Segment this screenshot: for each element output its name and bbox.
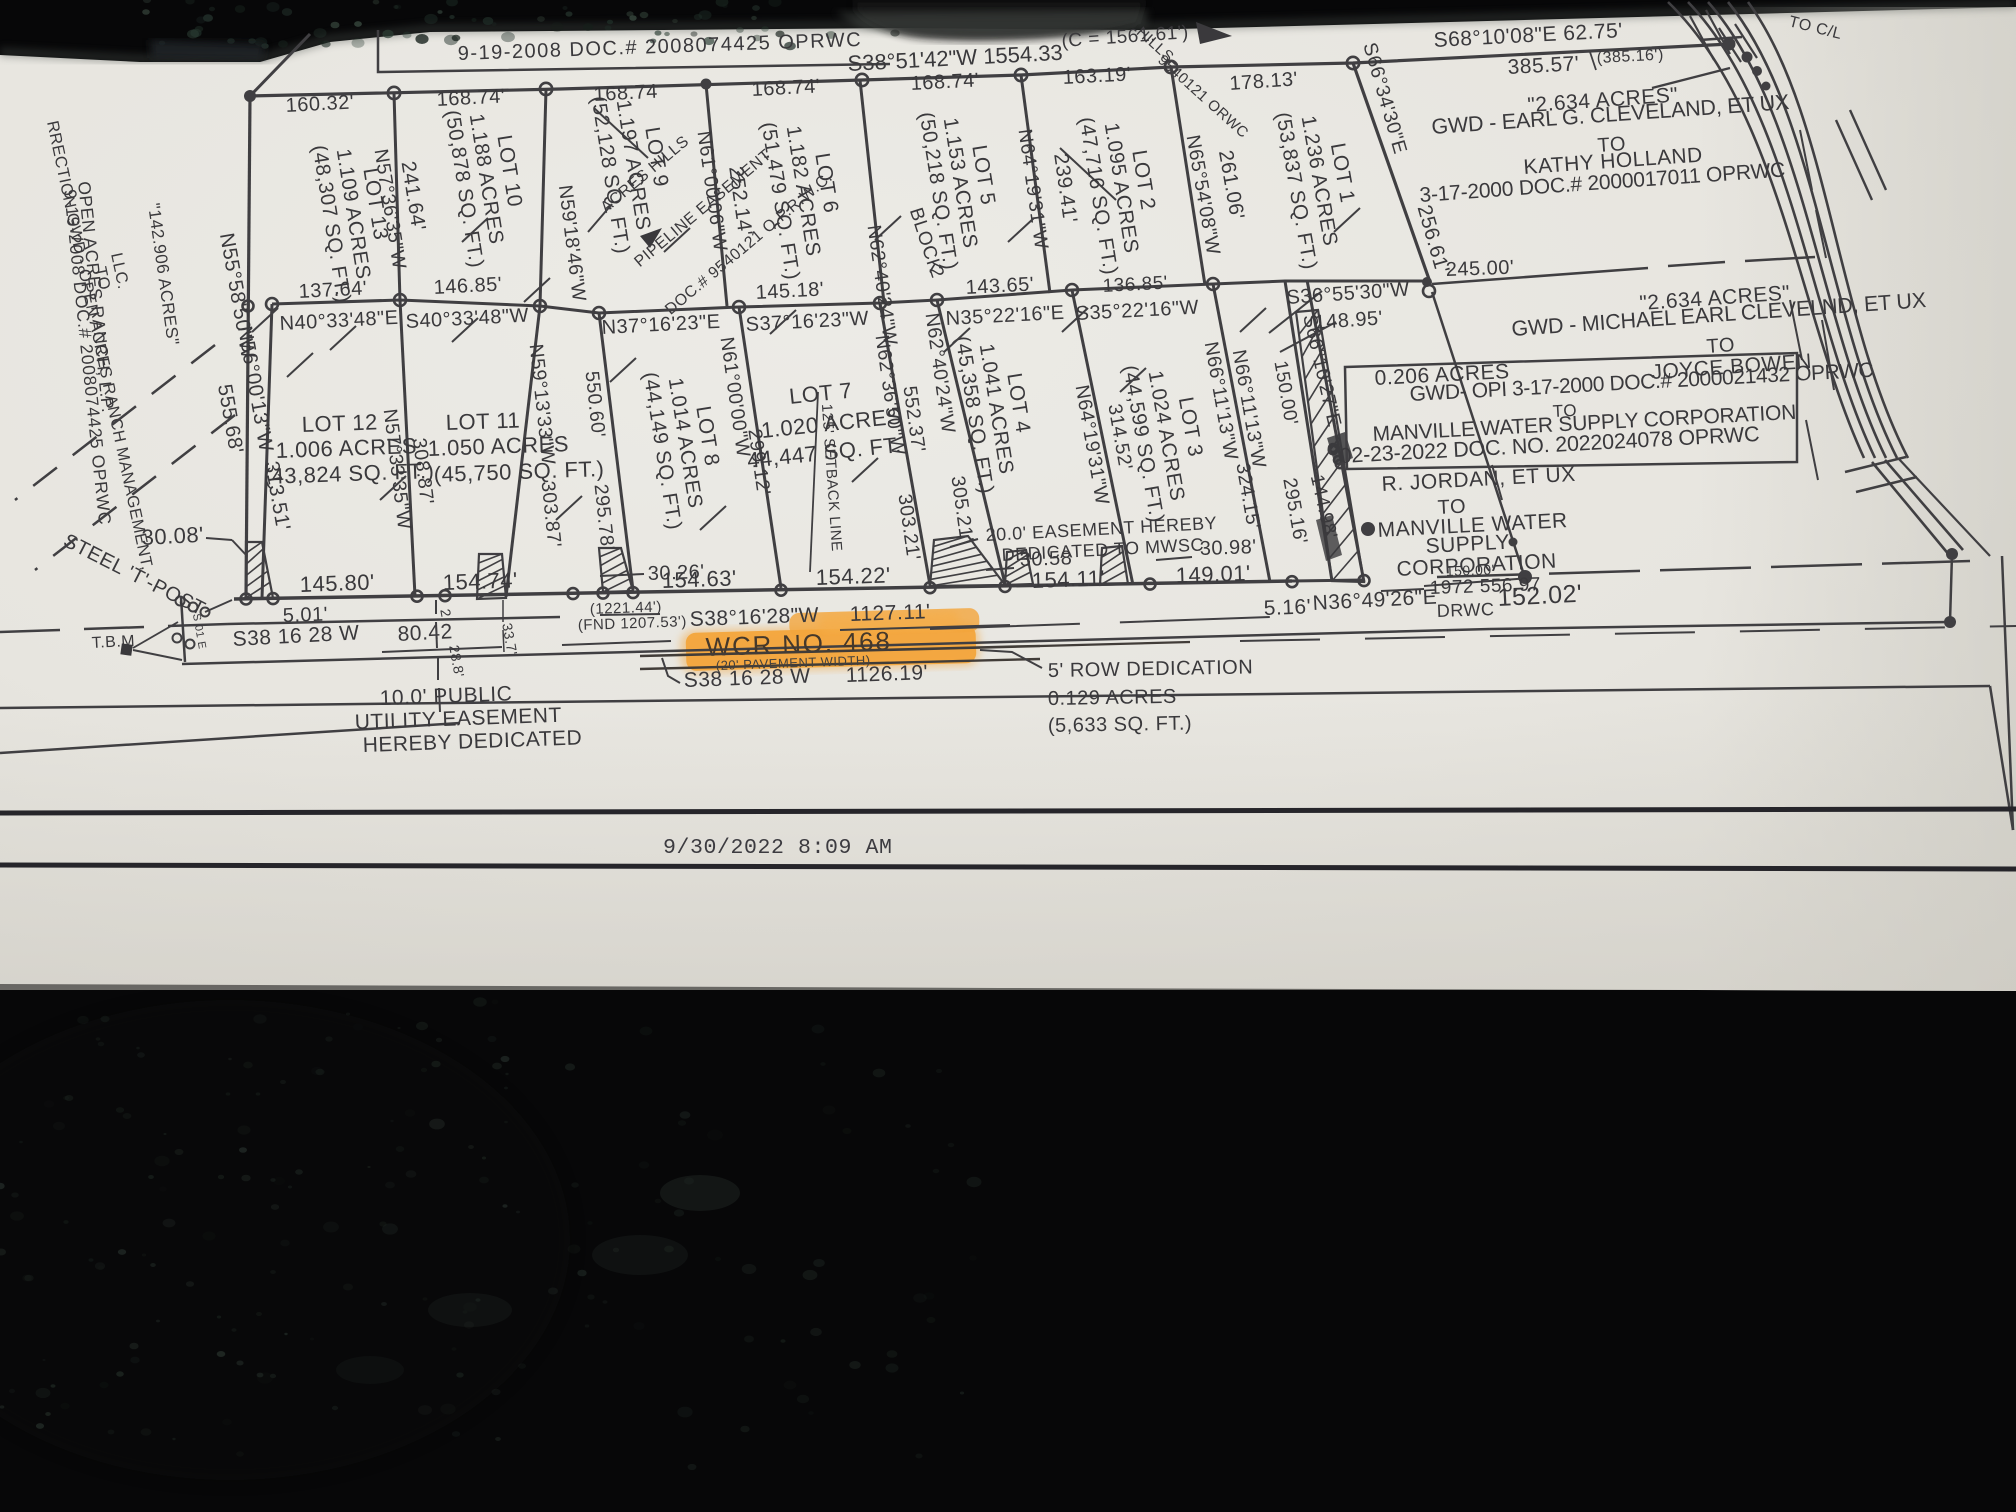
svg-text:145.80': 145.80' bbox=[299, 569, 375, 597]
svg-text:1126.19': 1126.19' bbox=[845, 661, 928, 687]
svg-text:146.85': 146.85' bbox=[433, 273, 503, 299]
svg-text:168.74': 168.74' bbox=[436, 85, 506, 111]
svg-text:S38 16 28 W: S38 16 28 W bbox=[683, 665, 811, 692]
svg-text:245.00': 245.00' bbox=[1445, 257, 1514, 281]
svg-text:154.74': 154.74' bbox=[442, 567, 518, 595]
svg-text:154.22': 154.22' bbox=[815, 562, 891, 590]
svg-text:143.65': 143.65' bbox=[965, 273, 1035, 299]
svg-text:385.57': 385.57' bbox=[1507, 52, 1580, 79]
svg-text:5' ROW DEDICATION: 5' ROW DEDICATION bbox=[1048, 656, 1254, 682]
svg-text:168.74': 168.74' bbox=[751, 75, 821, 101]
svg-text:(5,633 SQ. FT.): (5,633 SQ. FT.) bbox=[1048, 712, 1193, 737]
svg-text:S38°16'28"W: S38°16'28"W bbox=[689, 603, 819, 630]
svg-text:168.74': 168.74' bbox=[910, 69, 980, 95]
svg-text:DRWC: DRWC bbox=[1436, 599, 1494, 621]
svg-text:9/30/2022 8:09 AM: 9/30/2022 8:09 AM bbox=[663, 836, 893, 860]
svg-text:LOT 11: LOT 11 bbox=[445, 407, 520, 435]
svg-text:163.19': 163.19' bbox=[1062, 63, 1132, 89]
svg-text:5.16': 5.16' bbox=[1263, 595, 1311, 620]
svg-text:160.32': 160.32' bbox=[285, 91, 355, 117]
svg-text:80.42: 80.42 bbox=[397, 620, 453, 646]
svg-text:0.129 ACRES: 0.129 ACRES bbox=[1048, 686, 1177, 710]
svg-text:136.85': 136.85' bbox=[1102, 273, 1168, 297]
svg-text:152.02': 152.02' bbox=[1497, 580, 1583, 612]
svg-text:145.18': 145.18' bbox=[755, 278, 825, 304]
svg-text:30.58: 30.58 bbox=[1019, 547, 1072, 571]
svg-text:149.01': 149.01' bbox=[1175, 560, 1251, 588]
svg-text:1127.11': 1127.11' bbox=[849, 600, 931, 626]
svg-text:30.98': 30.98' bbox=[1199, 536, 1257, 560]
svg-text:30.26': 30.26' bbox=[647, 561, 705, 585]
svg-text:137.64': 137.64' bbox=[298, 277, 368, 303]
svg-text:(385.16'): (385.16') bbox=[1596, 47, 1664, 67]
svg-text:LOT 12: LOT 12 bbox=[301, 409, 378, 437]
